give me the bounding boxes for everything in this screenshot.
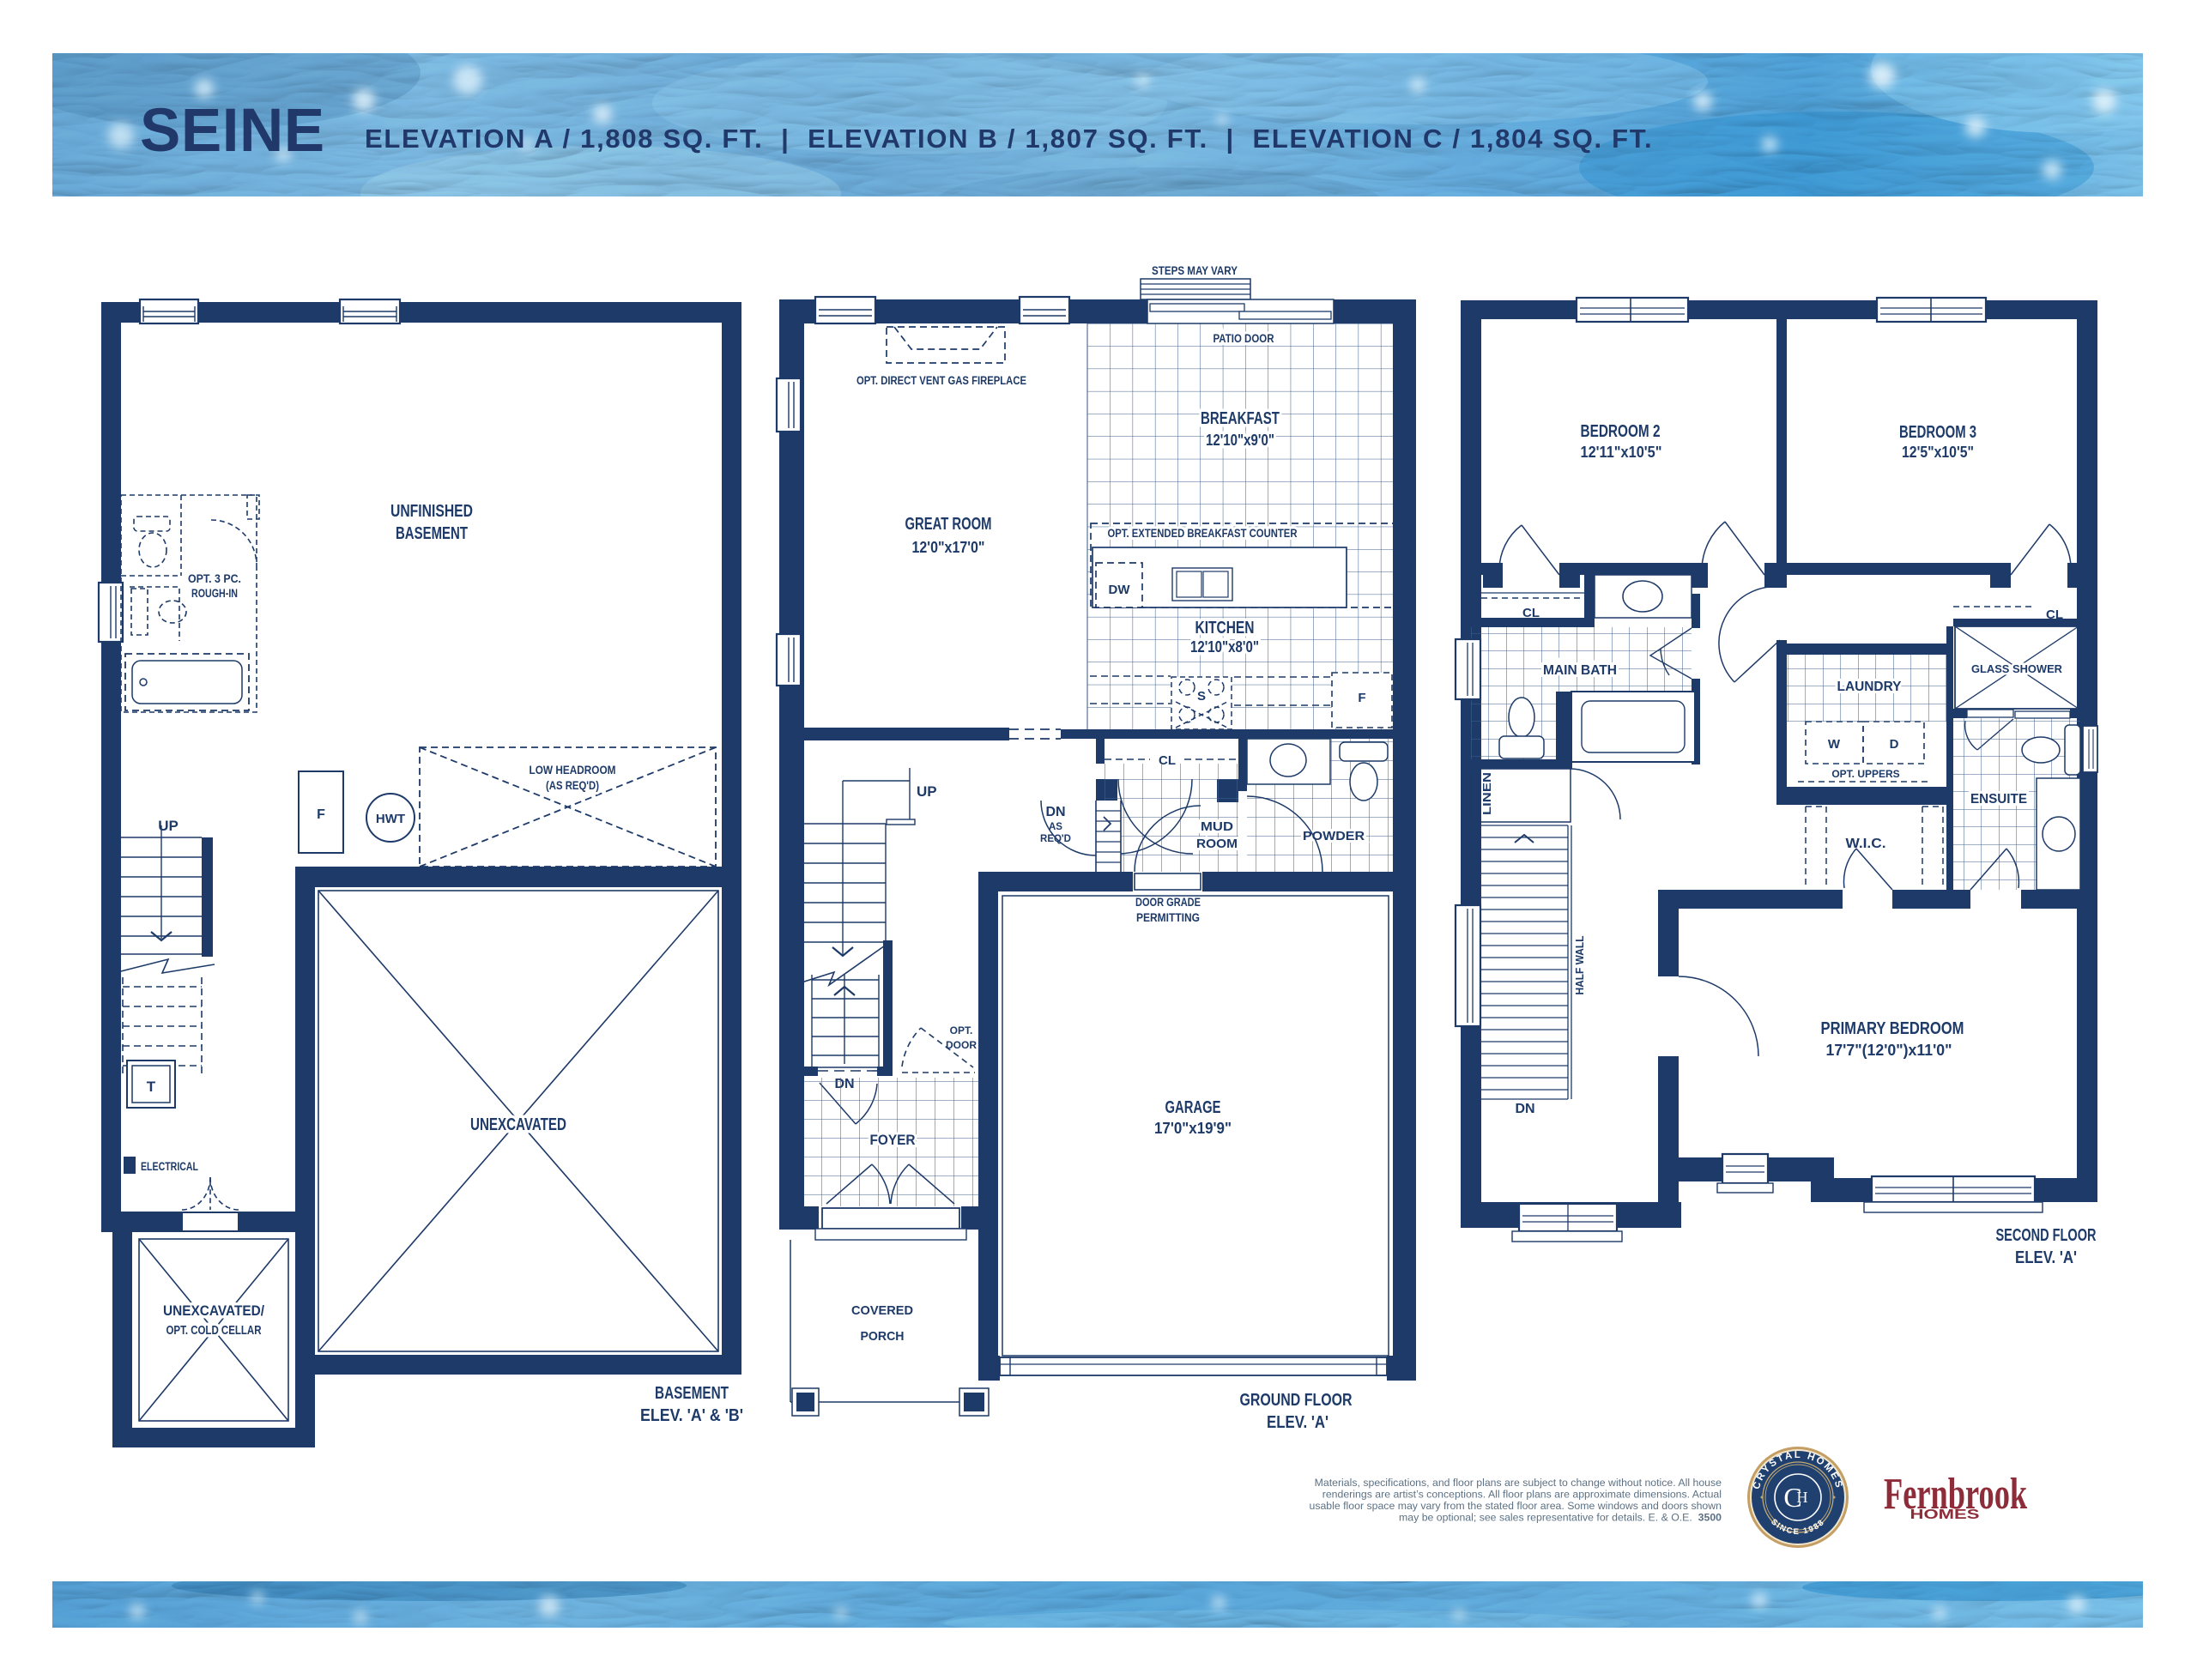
svg-text:DN: DN — [1045, 805, 1065, 819]
svg-text:12'10"x8'0": 12'10"x8'0" — [1190, 638, 1259, 656]
svg-text:OPT. 3 PC.: OPT. 3 PC. — [188, 572, 241, 585]
svg-text:KITCHEN: KITCHEN — [1195, 619, 1255, 638]
svg-text:12'11"x10'5": 12'11"x10'5" — [1581, 444, 1662, 461]
svg-text:UNEXCAVATED/: UNEXCAVATED/ — [163, 1302, 264, 1319]
svg-text:ROUGH-IN: ROUGH-IN — [191, 587, 238, 600]
svg-text:SECOND FLOOR: SECOND FLOOR — [1996, 1226, 2097, 1245]
svg-text:GARAGE: GARAGE — [1165, 1098, 1221, 1117]
svg-text:OPT. COLD CELLAR: OPT. COLD CELLAR — [166, 1324, 262, 1338]
svg-text:DOOR: DOOR — [946, 1039, 977, 1051]
svg-text:F: F — [317, 807, 325, 822]
svg-text:PATIO DOOR: PATIO DOOR — [1213, 332, 1274, 345]
svg-text:HWT: HWT — [376, 812, 405, 826]
svg-text:BEDROOM 2: BEDROOM 2 — [1581, 422, 1661, 441]
svg-text:LOW HEADROOM: LOW HEADROOM — [530, 763, 616, 777]
svg-text:ELEV. 'A': ELEV. 'A' — [2015, 1248, 2077, 1267]
svg-text:ELECTRICAL: ELECTRICAL — [141, 1160, 198, 1173]
svg-text:PORCH: PORCH — [861, 1329, 905, 1344]
svg-text:CL: CL — [1522, 606, 1540, 620]
svg-text:ELEVATION A / 1,808 SQ. FT. |: ELEVATION A / 1,808 SQ. FT. | ELEVATION … — [365, 124, 1653, 154]
svg-text:STEPS MAY VARY: STEPS MAY VARY — [1152, 264, 1238, 277]
svg-text:OPT. UPPERS: OPT. UPPERS — [1831, 768, 1899, 780]
svg-text:MAIN BATH: MAIN BATH — [1543, 663, 1617, 678]
svg-text:MUD: MUD — [1201, 819, 1233, 834]
svg-text:DN: DN — [1515, 1102, 1534, 1116]
svg-text:ENSUITE: ENSUITE — [1970, 792, 2027, 807]
svg-text:OPT. EXTENDED BREAKFAST COUNTE: OPT. EXTENDED BREAKFAST COUNTER — [1108, 527, 1298, 540]
svg-text:HOMES: HOMES — [1910, 1508, 1980, 1522]
svg-text:BASEMENT: BASEMENT — [655, 1384, 729, 1403]
svg-text:17'7"(12'0")x11'0": 17'7"(12'0")x11'0" — [1826, 1042, 1952, 1059]
svg-text:may be optional; see sales rep: may be optional; see sales representativ… — [1399, 1512, 1722, 1524]
svg-text:F: F — [1358, 691, 1365, 705]
svg-text:(AS REQ'D): (AS REQ'D) — [546, 778, 599, 792]
svg-text:ELEV. 'A' & 'B': ELEV. 'A' & 'B' — [640, 1406, 743, 1425]
svg-text:BREAKFAST: BREAKFAST — [1201, 409, 1280, 428]
svg-text:GREAT ROOM: GREAT ROOM — [905, 515, 992, 534]
svg-text:UNEXCAVATED: UNEXCAVATED — [470, 1115, 566, 1134]
svg-text:ROOM: ROOM — [1196, 837, 1238, 851]
svg-text:W.I.C.: W.I.C. — [1846, 837, 1886, 851]
svg-text:12'0"x17'0": 12'0"x17'0" — [912, 539, 985, 556]
svg-text:H: H — [1797, 1489, 1808, 1506]
svg-text:CL: CL — [2046, 607, 2063, 622]
svg-text:PRIMARY BEDROOM: PRIMARY BEDROOM — [1821, 1019, 1964, 1038]
svg-text:SEINE: SEINE — [140, 97, 325, 165]
svg-text:BASEMENT: BASEMENT — [396, 524, 468, 543]
svg-text:FOYER: FOYER — [870, 1132, 916, 1148]
svg-text:17'0"x19'9": 17'0"x19'9" — [1154, 1120, 1232, 1137]
svg-text:LINEN: LINEN — [1480, 772, 1493, 815]
svg-text:PERMITTING: PERMITTING — [1136, 911, 1200, 924]
svg-text:UP: UP — [917, 783, 937, 800]
svg-text:AS: AS — [1049, 822, 1062, 832]
svg-text:12'10"x9'0": 12'10"x9'0" — [1206, 432, 1274, 449]
svg-text:ELEV. 'A': ELEV. 'A' — [1267, 1413, 1328, 1432]
svg-text:renderings are artist’s concep: renderings are artist’s conceptions. All… — [1322, 1489, 1722, 1501]
svg-text:COVERED: COVERED — [851, 1303, 913, 1318]
svg-text:GROUND FLOOR: GROUND FLOOR — [1240, 1391, 1353, 1410]
svg-text:12'5"x10'5": 12'5"x10'5" — [1902, 444, 1974, 461]
svg-text:W: W — [1828, 737, 1841, 752]
svg-text:HALF WALL: HALF WALL — [1574, 935, 1586, 994]
svg-text:T: T — [147, 1079, 156, 1095]
svg-text:D: D — [1890, 737, 1899, 752]
svg-text:Materials, specifications, and: Materials, specifications, and floor pla… — [1315, 1477, 1722, 1489]
svg-text:usable floor space may vary fr: usable floor space may vary from the sta… — [1309, 1500, 1722, 1512]
svg-text:OPT. DIRECT VENT GAS FIREPLACE: OPT. DIRECT VENT GAS FIREPLACE — [856, 374, 1026, 387]
svg-text:UNFINISHED: UNFINISHED — [390, 502, 473, 521]
svg-text:DOOR GRADE: DOOR GRADE — [1135, 896, 1201, 909]
svg-text:LAUNDRY: LAUNDRY — [1837, 680, 1903, 694]
svg-text:BEDROOM 3: BEDROOM 3 — [1899, 423, 1976, 442]
svg-text:DW: DW — [1109, 583, 1131, 597]
svg-text:S: S — [1197, 689, 1206, 704]
svg-text:UP: UP — [158, 818, 179, 834]
svg-text:POWDER: POWDER — [1303, 829, 1365, 843]
svg-text:REQ'D: REQ'D — [1040, 834, 1071, 844]
svg-text:GLASS SHOWER: GLASS SHOWER — [1971, 663, 2062, 675]
svg-text:OPT.: OPT. — [950, 1024, 973, 1036]
